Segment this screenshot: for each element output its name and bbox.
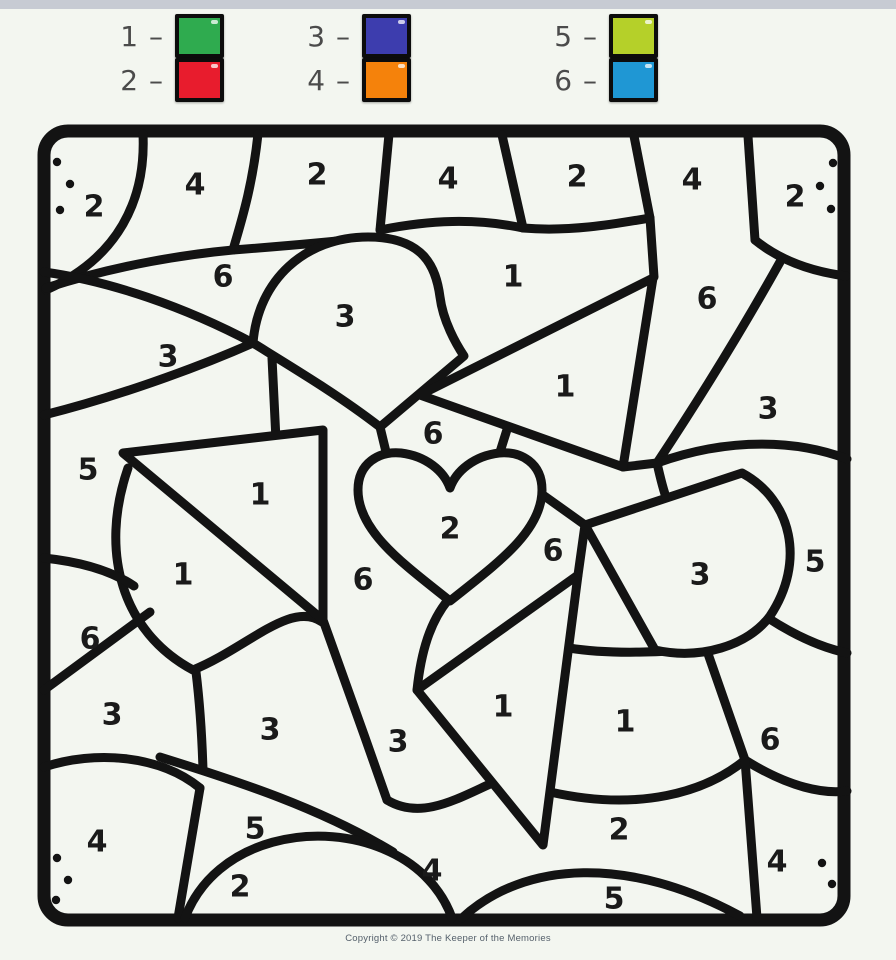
corner-dot [53,854,61,862]
region-number-label: 3 [758,392,779,427]
region-number-label: 2 [307,158,328,193]
region-number-label: 6 [543,534,564,569]
region-number-label: 1 [615,705,636,740]
region-number-label: 6 [213,260,234,295]
color-by-number-worksheet: 2424242616331356126351663331164524245 [0,0,896,960]
region-number-label: 5 [245,812,266,847]
region-number-label: 2 [567,160,588,195]
region-number-label: 2 [609,813,630,848]
region-number-label: 4 [767,845,788,880]
region-number-label: 3 [690,558,711,593]
region-number-label: 3 [260,713,281,748]
region-number-label: 3 [102,698,123,733]
region-number-label: 1 [173,558,194,593]
triangle-right-shape [420,278,653,467]
corner-dot [828,880,836,888]
region-number-label: 4 [682,163,703,198]
shield-shape [585,473,790,653]
region-number-label: 1 [503,260,524,295]
region-number-label: 1 [555,370,576,405]
corner-dot [829,159,837,167]
region-number-label: 3 [388,725,409,760]
corner-dot [64,876,72,884]
corner-dot [56,206,64,214]
corner-dot [52,896,60,904]
region-number-label: 2 [230,870,251,905]
region-number-label: 6 [697,282,718,317]
triangle-left-shape [123,430,323,620]
region-number-label: 5 [78,453,99,488]
region-number-label: 6 [423,417,444,452]
corner-dot [827,205,835,213]
region-number-label: 3 [158,340,179,375]
region-number-label: 4 [185,168,206,203]
region-number-label: 3 [335,300,356,335]
region-number-label: 4 [438,162,459,197]
region-number-label: 1 [493,690,514,725]
region-number-label: 4 [422,854,443,889]
region-number-label: 2 [785,180,806,215]
corner-dot [53,158,61,166]
region-number-label: 2 [84,190,105,225]
region-number-label: 1 [250,478,271,513]
region-number-label: 6 [80,622,101,657]
region-number-label: 5 [604,882,625,917]
corner-dot [66,180,74,188]
corner-dot [818,859,826,867]
region-number-label: 6 [353,563,374,598]
region-number-label: 6 [760,723,781,758]
region-number-label: 4 [87,825,108,860]
region-number-label: 5 [805,545,826,580]
copyright-text: Copyright © 2019 The Keeper of the Memor… [0,933,896,944]
corner-dot [816,182,824,190]
region-number-label: 2 [440,512,461,547]
